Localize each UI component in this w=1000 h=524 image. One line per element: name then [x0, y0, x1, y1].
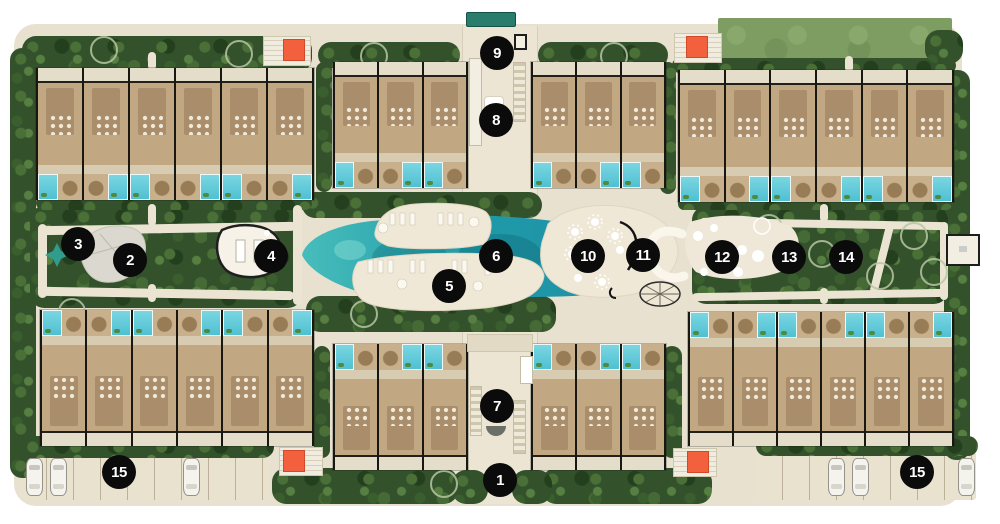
orange-amenity-marker [686, 36, 708, 58]
plunge-pool [932, 176, 952, 202]
building-cluster [531, 344, 666, 470]
walking-path [820, 204, 828, 222]
map-marker-9[interactable]: 9 [480, 36, 514, 70]
map-marker-5[interactable]: 5 [432, 269, 466, 303]
map-marker-4[interactable]: 4 [254, 239, 288, 273]
palapa-structure [640, 282, 680, 306]
car-icon [852, 458, 869, 496]
villa-unit [724, 70, 770, 202]
plunge-pool [108, 174, 128, 200]
villa-unit [620, 62, 664, 188]
building-cluster [333, 62, 468, 188]
plunge-pool [600, 344, 619, 370]
plunge-pool [223, 310, 243, 336]
car-icon [183, 458, 200, 496]
plunge-pool [335, 344, 354, 370]
map-marker-11[interactable]: 11 [626, 238, 660, 272]
plunge-pool [845, 312, 864, 338]
entrance-canopy [466, 12, 516, 27]
villa-unit [220, 68, 266, 200]
villa-unit [688, 312, 732, 446]
car-icon [828, 458, 845, 496]
gatehouse [514, 34, 527, 50]
villa-unit [864, 312, 908, 446]
villa-unit [377, 62, 421, 188]
plunge-pool [222, 174, 242, 200]
villa-unit [776, 312, 820, 446]
villa-unit [531, 62, 575, 188]
building-cluster [40, 310, 314, 446]
utility-structure [946, 234, 980, 266]
villa-unit [82, 68, 128, 200]
map-marker-14[interactable]: 14 [829, 240, 863, 274]
tree-icon [90, 36, 118, 64]
resort-master-plan: 12345678910111213141515 [0, 0, 1000, 524]
plunge-pool [130, 174, 150, 200]
car-icon [26, 458, 43, 496]
orange-amenity-marker [283, 450, 305, 472]
villa-unit [575, 344, 619, 470]
tree-band [316, 62, 332, 192]
plunge-pool [933, 312, 952, 338]
tree-band [314, 346, 330, 458]
plunge-pool [133, 310, 153, 336]
plunge-pool [402, 162, 421, 188]
building-cluster [531, 62, 666, 188]
car-icon [50, 458, 67, 496]
map-marker-1[interactable]: 1 [483, 463, 517, 497]
map-marker-2[interactable]: 2 [113, 243, 147, 277]
villa-unit [377, 344, 421, 470]
villa-unit [85, 310, 130, 446]
villa-unit [266, 68, 312, 200]
orange-amenity-marker [687, 451, 709, 473]
villa-unit [908, 312, 952, 446]
villa-unit [422, 344, 466, 470]
villa-unit [861, 70, 907, 202]
villa-unit [221, 310, 266, 446]
stairs [513, 62, 526, 122]
map-marker-13[interactable]: 13 [772, 240, 806, 274]
map-marker-15-west[interactable]: 15 [102, 455, 136, 489]
villa-unit [128, 68, 174, 200]
plunge-pool [111, 310, 131, 336]
villa-unit [815, 70, 861, 202]
plunge-pool [424, 162, 443, 188]
villa-unit [906, 70, 952, 202]
map-marker-6[interactable]: 6 [479, 239, 513, 273]
plunge-pool [622, 344, 641, 370]
villa-unit [333, 344, 377, 470]
bench [520, 356, 533, 384]
plunge-pool [600, 162, 619, 188]
stairs [513, 400, 526, 454]
villa-unit [769, 70, 815, 202]
plunge-pool [533, 344, 552, 370]
car-icon [958, 458, 975, 496]
map-marker-8[interactable]: 8 [479, 103, 513, 137]
plunge-pool [335, 162, 354, 188]
villa-unit [620, 344, 664, 470]
tree-icon [866, 262, 894, 290]
map-marker-12[interactable]: 12 [705, 240, 739, 274]
villa-unit [575, 62, 619, 188]
villa-unit [531, 344, 575, 470]
villa-unit [678, 70, 724, 202]
villa-unit [174, 68, 220, 200]
plunge-pool [38, 174, 58, 200]
map-marker-3[interactable]: 3 [61, 227, 95, 261]
villa-unit [131, 310, 176, 446]
plunge-pool [622, 162, 641, 188]
building-cluster [333, 344, 468, 470]
corridor-structure [469, 58, 482, 146]
tree-band [512, 470, 552, 504]
plunge-pool [42, 310, 62, 336]
orange-amenity-marker [283, 39, 305, 61]
tree-icon [900, 222, 928, 250]
villa-unit [820, 312, 864, 446]
plunge-pool [866, 312, 885, 338]
plunge-pool [200, 174, 220, 200]
plunge-pool [402, 344, 421, 370]
map-marker-15-east[interactable]: 15 [900, 455, 934, 489]
plunge-pool [533, 162, 552, 188]
building-cluster [678, 70, 954, 202]
plunge-pool [863, 176, 883, 202]
walking-path [820, 288, 828, 304]
villa-unit [333, 62, 377, 188]
villa-unit [267, 310, 312, 446]
south-deck [467, 334, 533, 352]
villa-unit [422, 62, 466, 188]
plunge-pool [841, 176, 861, 202]
villa-unit [176, 310, 221, 446]
tree-icon [225, 40, 253, 68]
villa-unit [40, 310, 85, 446]
building-cluster [688, 312, 954, 446]
villa-unit [36, 68, 82, 200]
tree-icon [430, 470, 458, 498]
map-marker-7[interactable]: 7 [480, 389, 514, 423]
plunge-pool [424, 344, 443, 370]
plunge-pool [201, 310, 221, 336]
building-cluster [36, 68, 314, 200]
tree-band [925, 30, 963, 64]
villa-unit [732, 312, 776, 446]
map-marker-10[interactable]: 10 [571, 239, 605, 273]
tree-icon [920, 258, 948, 286]
